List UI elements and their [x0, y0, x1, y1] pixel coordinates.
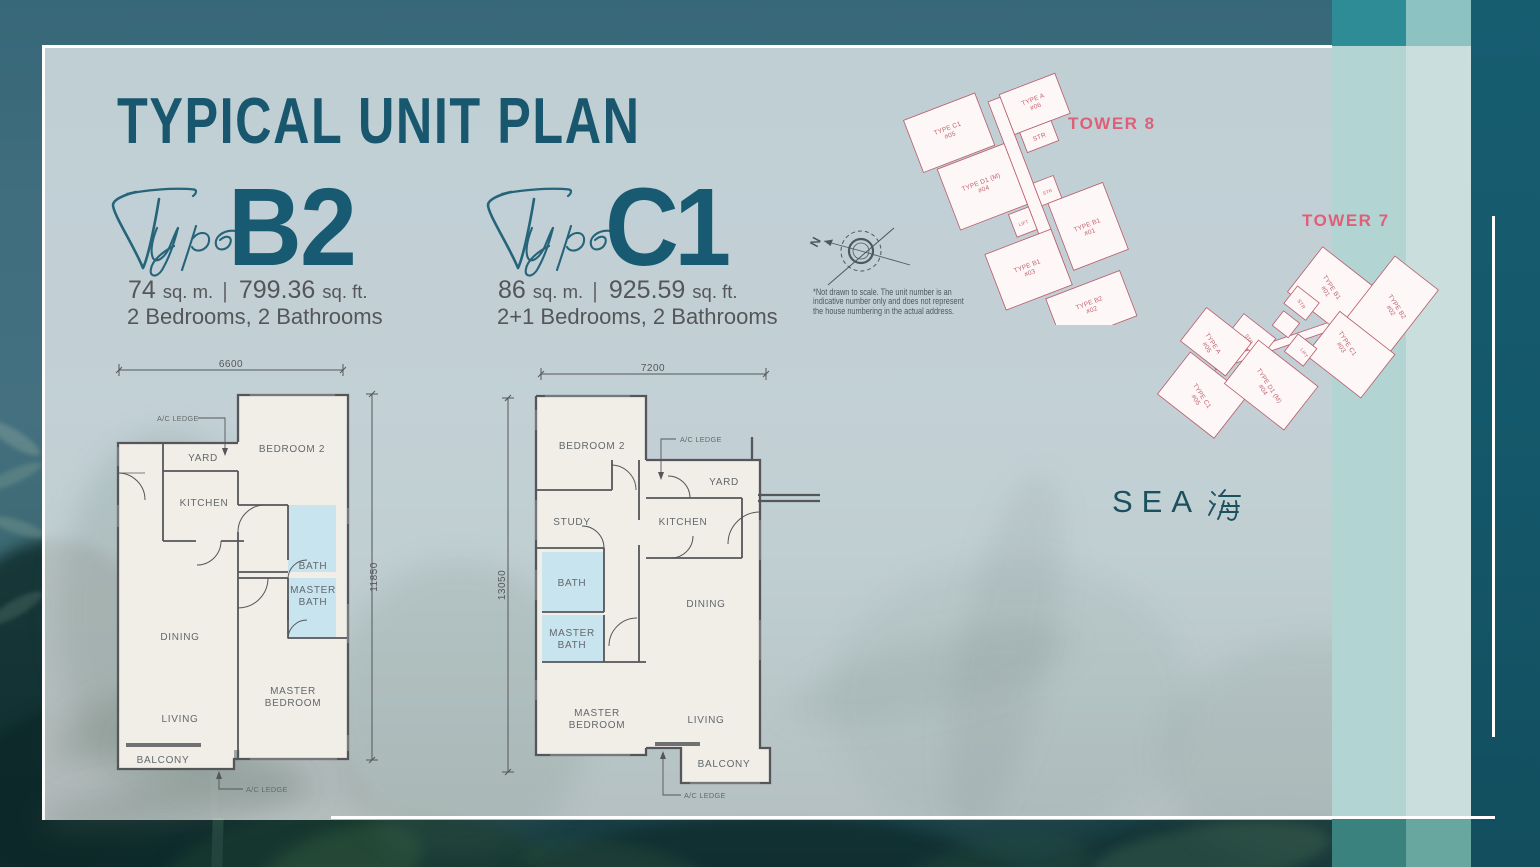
- svg-text:A/C LEDGE: A/C LEDGE: [680, 435, 722, 444]
- svg-text:KITCHEN: KITCHEN: [659, 517, 708, 528]
- svg-text:DINING: DINING: [686, 599, 725, 610]
- svg-text:N: N: [807, 235, 824, 250]
- svg-text:13050: 13050: [497, 570, 508, 600]
- svg-text:BEDROOM 2: BEDROOM 2: [559, 441, 625, 452]
- svg-text:DINING: DINING: [160, 632, 199, 643]
- svg-text:MASTER: MASTER: [574, 708, 620, 719]
- svg-text:MASTER: MASTER: [549, 628, 595, 639]
- svg-text:BATH: BATH: [299, 597, 328, 608]
- svg-text:BALCONY: BALCONY: [137, 755, 190, 766]
- svg-text:A/C LEDGE: A/C LEDGE: [246, 785, 288, 794]
- svg-text:BEDROOM 2: BEDROOM 2: [259, 444, 325, 455]
- svg-text:7200: 7200: [641, 363, 665, 374]
- svg-text:A/C LEDGE: A/C LEDGE: [684, 791, 726, 800]
- svg-text:LIVING: LIVING: [688, 715, 725, 726]
- svg-text:BATH: BATH: [558, 640, 587, 651]
- svg-text:A/C LEDGE: A/C LEDGE: [157, 414, 199, 423]
- svg-text:BALCONY: BALCONY: [698, 759, 751, 770]
- svg-text:11850: 11850: [369, 562, 380, 592]
- svg-text:STUDY: STUDY: [553, 517, 590, 528]
- svg-text:LIVING: LIVING: [162, 714, 199, 725]
- svg-text:MASTER: MASTER: [270, 686, 316, 697]
- svg-text:KITCHEN: KITCHEN: [180, 498, 229, 509]
- svg-text:BEDROOM: BEDROOM: [265, 698, 322, 709]
- svg-text:BATH: BATH: [558, 578, 587, 589]
- svg-text:MASTER: MASTER: [290, 585, 336, 596]
- svg-text:BEDROOM: BEDROOM: [569, 720, 626, 731]
- svg-text:BATH: BATH: [299, 561, 328, 572]
- svg-text:6600: 6600: [219, 359, 243, 370]
- svg-text:YARD: YARD: [709, 477, 739, 488]
- svg-text:YARD: YARD: [188, 453, 218, 464]
